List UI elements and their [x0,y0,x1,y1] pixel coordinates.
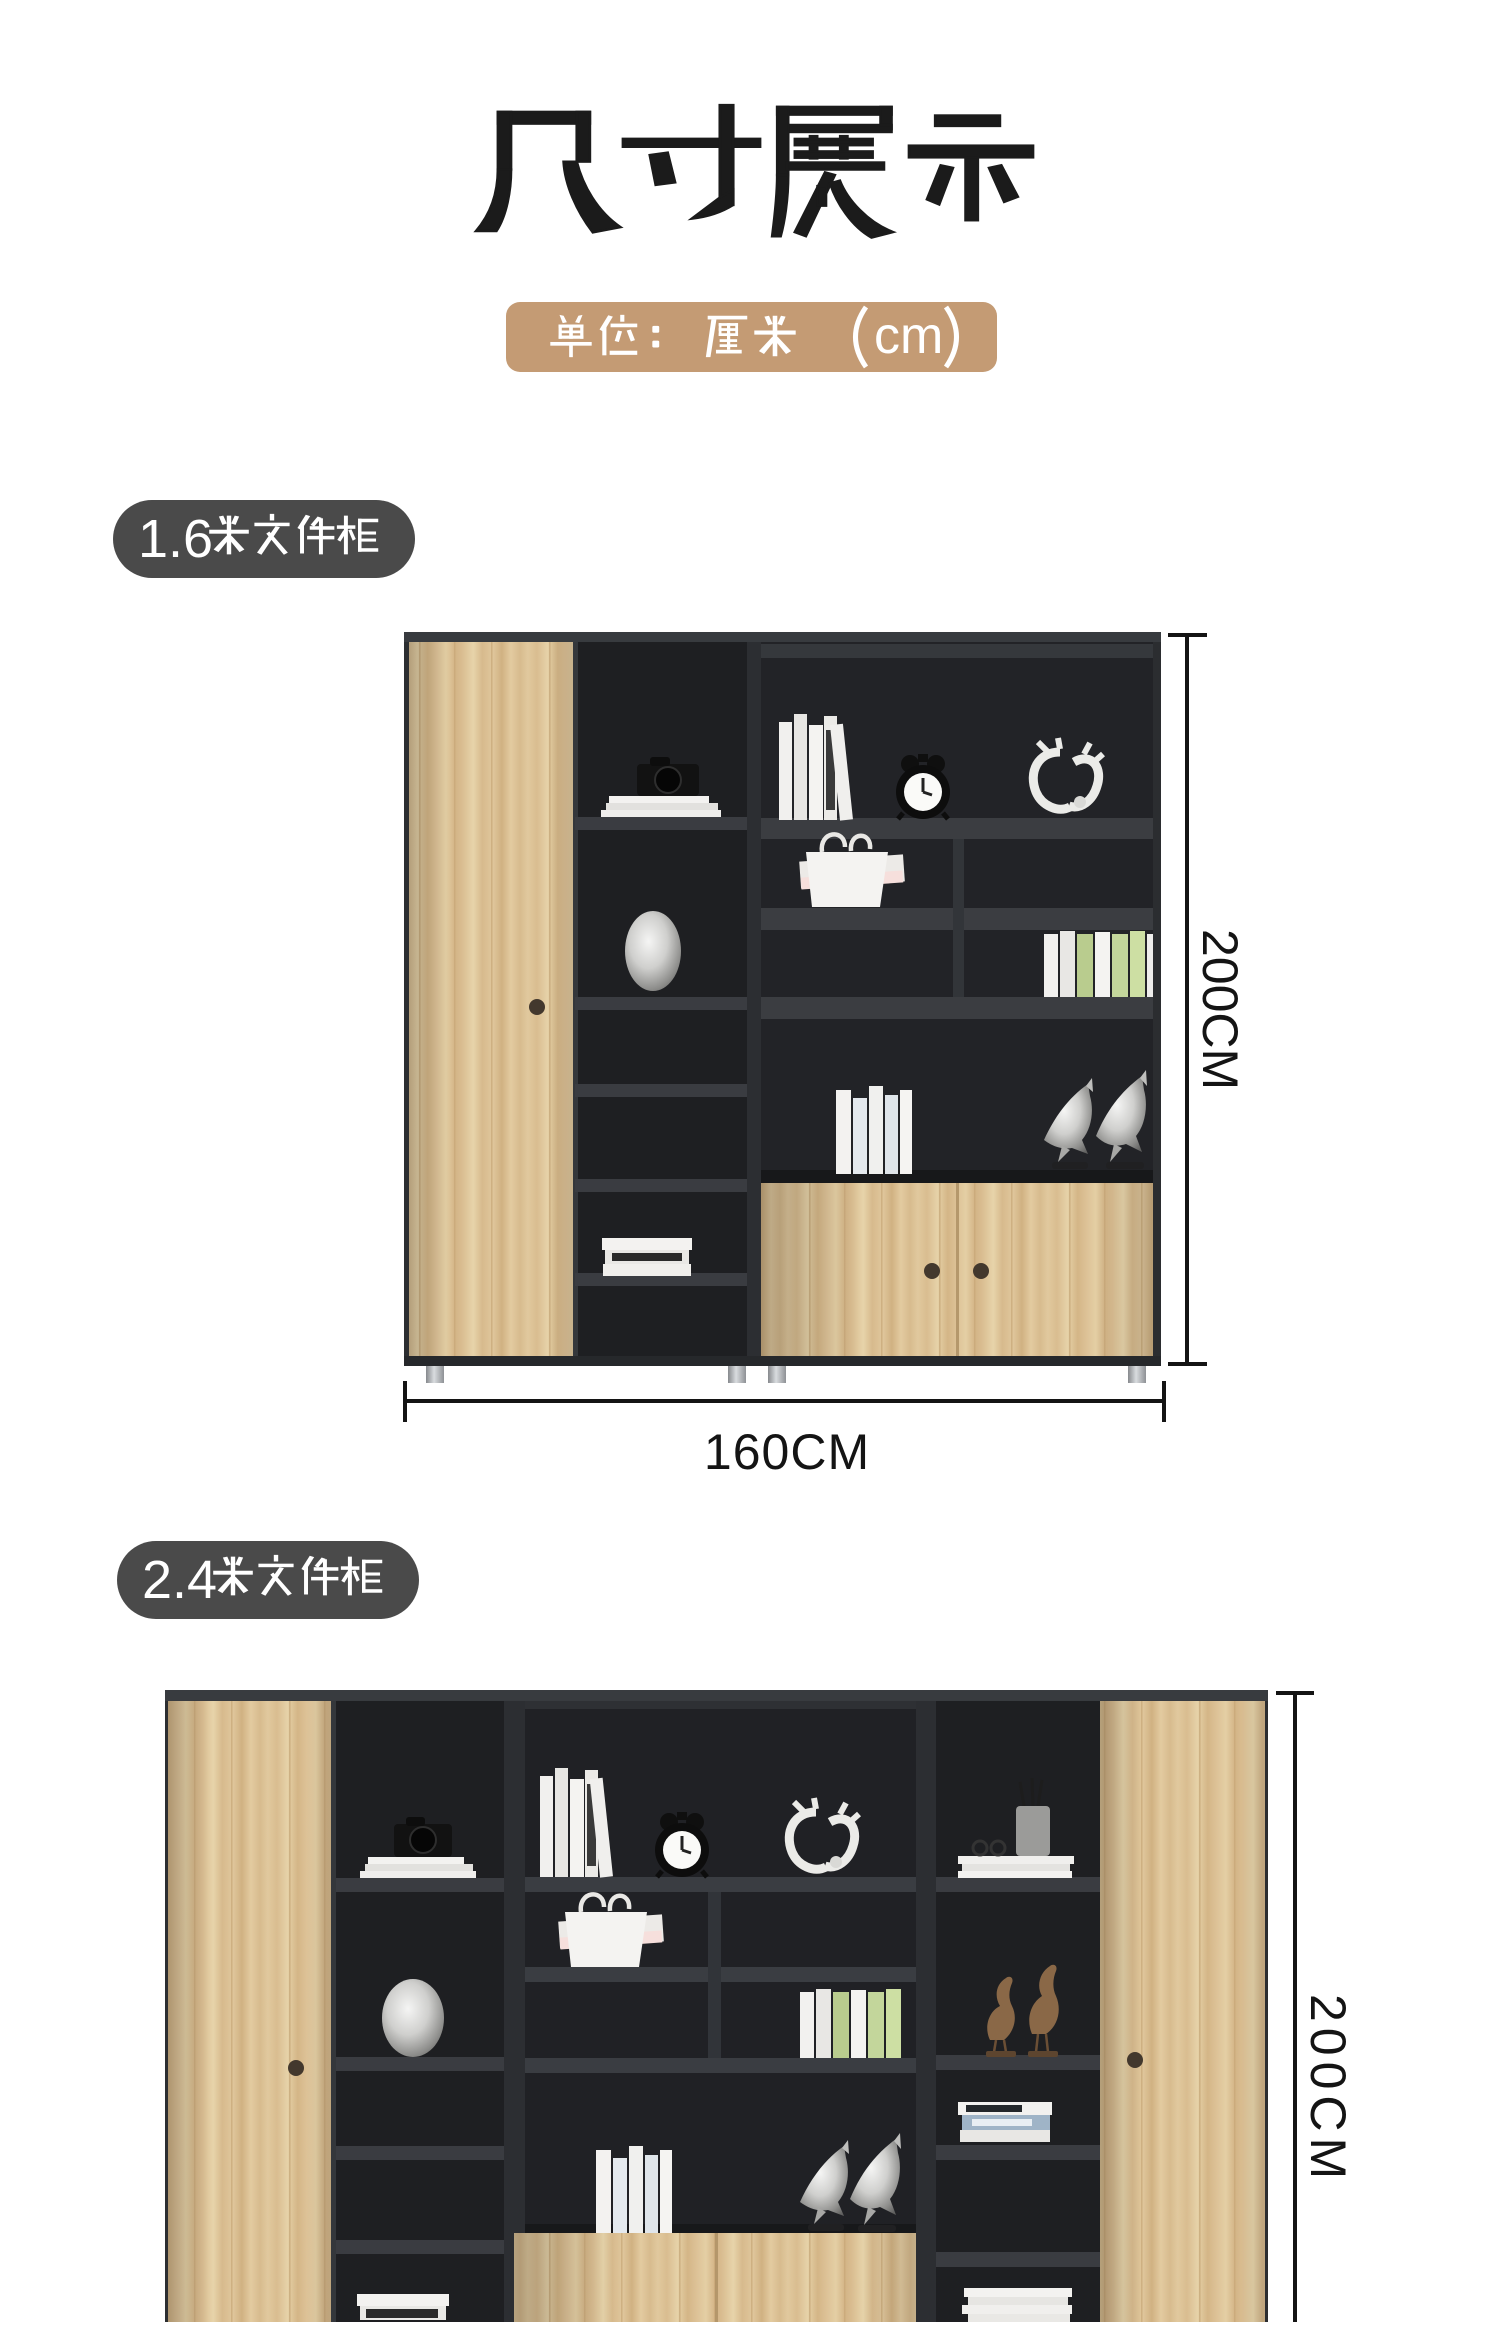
svg-text:2.4: 2.4 [142,1550,217,1610]
svg-text:200CM: 200CM [1300,1994,1356,2185]
svg-text:cm: cm [874,307,943,365]
svg-text:160CM: 160CM [704,1424,870,1480]
svg-text:200CM: 200CM [1192,929,1248,1090]
svg-text:1.6: 1.6 [138,509,213,569]
